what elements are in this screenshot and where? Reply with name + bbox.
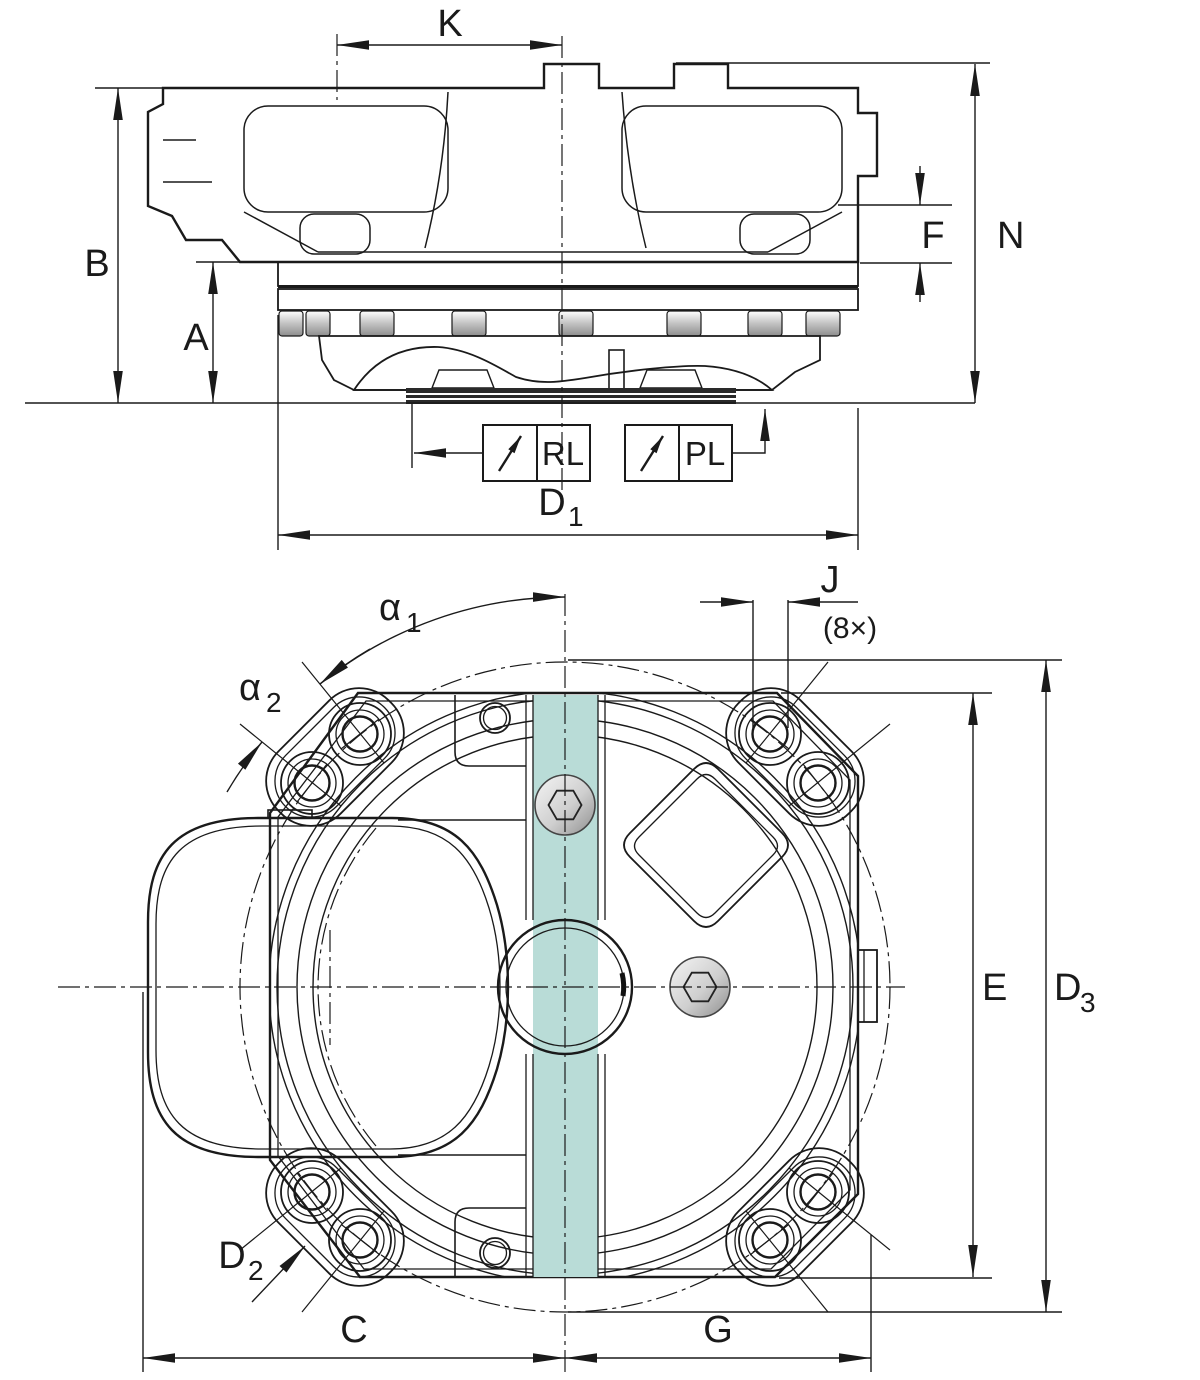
bolt-heads (279, 311, 840, 336)
dim-label-f: F (921, 215, 944, 257)
lower-body (319, 336, 820, 404)
dim-label-alpha1: α (379, 587, 401, 629)
pin-hole-bottom (480, 1238, 510, 1268)
base-plate (406, 388, 736, 393)
dim-B: B (84, 88, 165, 403)
dim-D3: D 3 (568, 660, 1096, 1312)
surface-symbol-rl: RL (412, 403, 590, 481)
output-flange (148, 810, 526, 1157)
dim-A: A (183, 262, 282, 403)
dim-label-d3: D (1054, 967, 1081, 1009)
dim-label-j: J (821, 559, 840, 601)
dim-label-j-count: (8×) (823, 612, 877, 645)
dim-label-d2-sub: 2 (248, 1255, 264, 1286)
dim-J: J (8×) (700, 559, 877, 728)
rl-arrow-glyph (499, 436, 521, 471)
dim-label-alpha2: α (239, 667, 261, 709)
dim-label-pl: PL (685, 435, 725, 472)
cam-profile (354, 347, 772, 390)
rotary-table-drawing: K B A F N (0, 0, 1200, 1380)
dim-N: N (676, 63, 1024, 403)
front-view: α 1 α 2 J (8×) E (58, 559, 1096, 1372)
dim-label-n: N (997, 215, 1024, 257)
dim-label-g: G (703, 1309, 733, 1351)
dim-label-d1-sub: 1 (568, 501, 584, 532)
dim-label-d2: D (218, 1235, 245, 1277)
flange-band (278, 262, 858, 310)
housing-outline (148, 64, 877, 262)
technical-drawing-page: K B A F N (0, 0, 1200, 1380)
dim-alpha1: α 1 (320, 587, 565, 684)
dim-label-a: A (183, 317, 209, 359)
pl-arrow-glyph (641, 436, 663, 471)
dim-label-d3-sub: 3 (1080, 987, 1096, 1018)
dim-label-k: K (437, 3, 462, 45)
dim-label-alpha1-sub: 1 (406, 607, 422, 638)
right-edge-tab (858, 950, 877, 1022)
dim-F: F (838, 166, 952, 302)
side-view: K B A F N (25, 3, 1024, 550)
dim-label-c: C (340, 1309, 367, 1351)
dim-label-e: E (982, 967, 1007, 1009)
dim-K: K (337, 3, 562, 100)
dim-label-d1: D (538, 482, 565, 524)
dim-D2: D 2 (218, 1235, 305, 1302)
dim-label-b: B (84, 243, 109, 285)
dim-label-rl: RL (542, 435, 584, 472)
dim-D1: D 1 (278, 315, 858, 550)
dim-label-alpha2-sub: 2 (266, 687, 282, 718)
housing-interior-lines (163, 92, 842, 254)
dim-G: G (565, 1235, 871, 1372)
dim-E: E (779, 693, 1007, 1278)
surface-symbol-pl: PL (625, 409, 765, 481)
